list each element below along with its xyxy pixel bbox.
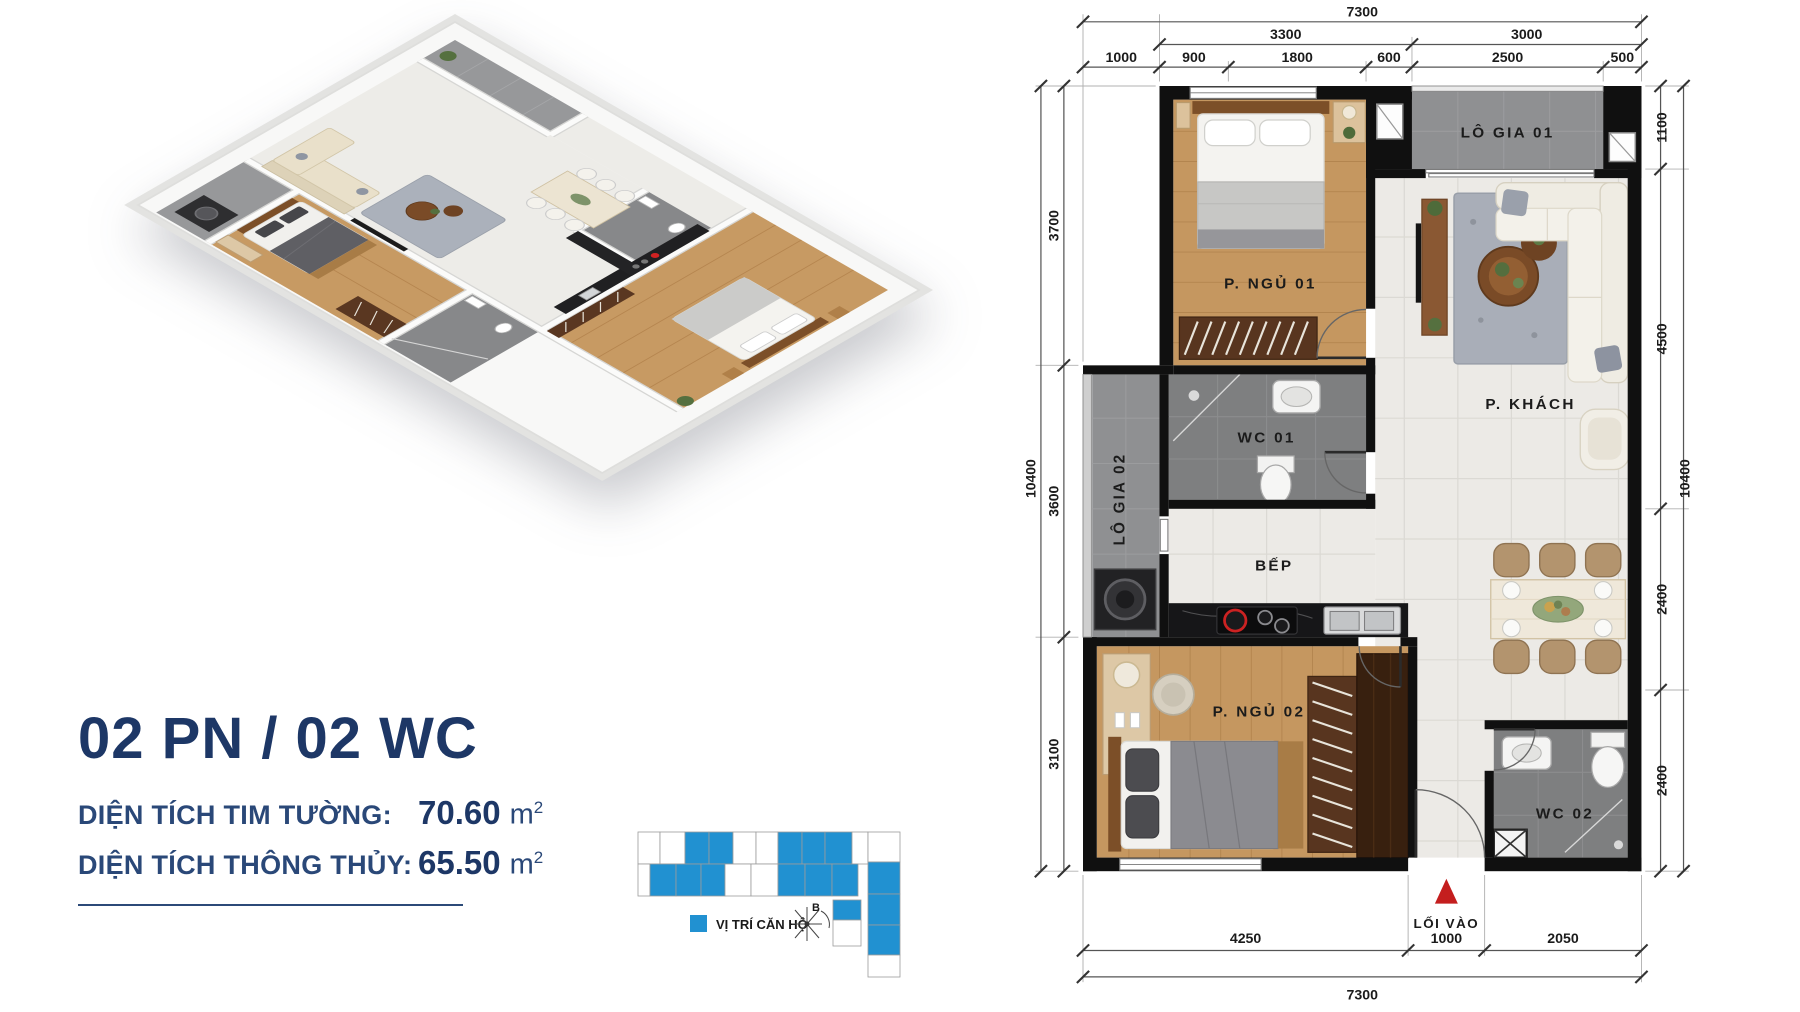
- area-rows: DIỆN TÍCH TIM TƯỜNG: 70.60 m2 DIỆN TÍCH …: [78, 794, 638, 882]
- dim-top-seg-2: 900: [1182, 49, 1206, 65]
- dim-right-seg-4: 2400: [1654, 765, 1670, 796]
- room-label-wc2: WC 02: [1536, 805, 1594, 822]
- dim-top-group-1: 3300: [1270, 26, 1302, 42]
- dim-top-seg-3: 1800: [1281, 49, 1313, 65]
- room-label-living: P. KHÁCH: [1485, 396, 1575, 413]
- unit-summary: 02 PN / 02 WC DIỆN TÍCH TIM TƯỜNG: 70.60…: [78, 710, 638, 906]
- room-label-entrance: LỐI VÀO: [1414, 916, 1480, 931]
- dim-bottom-seg-3: 2050: [1547, 930, 1579, 946]
- dim-left-total: 10400: [1022, 459, 1038, 498]
- area-value-gross: 70.60: [418, 794, 501, 832]
- building-locator: VỊ TRÍ CĂN HỘ B: [590, 812, 940, 1007]
- dim-right-seg-2: 4500: [1654, 323, 1670, 354]
- dim-top-seg-6: 500: [1611, 49, 1635, 65]
- dim-right-seg-1: 1100: [1654, 112, 1670, 142]
- kitchen-fixtures: [1169, 603, 1408, 637]
- compass-label: B: [812, 902, 820, 914]
- iso-apartment: [124, 14, 933, 481]
- area-label-gross: DIỆN TÍCH TIM TƯỜNG:: [78, 800, 418, 831]
- area-row-gross: DIỆN TÍCH TIM TƯỜNG: 70.60 m2: [78, 794, 638, 832]
- dining-set: [1491, 544, 1626, 674]
- legend-swatch: [690, 915, 707, 932]
- dim-top-group-2: 3000: [1511, 26, 1543, 42]
- dim-left-seg-3: 3100: [1045, 738, 1061, 769]
- divider-line: [78, 904, 463, 906]
- dim-bottom-seg-1: 4250: [1230, 930, 1262, 946]
- room-label-bedroom2: P. NGỦ 02: [1213, 703, 1306, 721]
- dim-top-seg-4: 600: [1377, 49, 1401, 65]
- building-footprint: [638, 832, 900, 977]
- area-value-net: 65.50: [418, 844, 501, 882]
- entrance-marker: LỐI VÀO: [1414, 879, 1480, 931]
- dim-bottom-total: 7300: [1346, 987, 1378, 1003]
- area-label-net: DIỆN TÍCH THÔNG THỦY:: [78, 850, 418, 881]
- dim-bottom-seg-2: 1000: [1431, 930, 1463, 946]
- room-label-bedroom1: P. NGỦ 01: [1224, 274, 1317, 292]
- dim-top-seg-1: 1000: [1106, 49, 1138, 65]
- apartment-3d-render: [25, 0, 945, 700]
- room-label-wc1: WC 01: [1237, 429, 1295, 446]
- dim-right-seg-3: 2400: [1654, 584, 1670, 615]
- area-unit-net: m2: [510, 848, 544, 882]
- dim-left-seg-1: 3700: [1045, 210, 1061, 241]
- area-unit-gross: m2: [510, 798, 544, 832]
- dim-left-seg-2: 3600: [1045, 486, 1061, 517]
- loggia2-fixtures: [1094, 569, 1155, 629]
- locator-legend: VỊ TRÍ CĂN HỘ: [690, 915, 808, 932]
- dim-top-total: 7300: [1346, 4, 1378, 20]
- page: 02 PN / 02 WC DIỆN TÍCH TIM TƯỜNG: 70.60…: [0, 0, 1800, 1012]
- room-label-loggia2: LÔ GIA 02: [1111, 453, 1129, 546]
- floor-plan: LỐI VÀO P. NGỦ 01 WC 01 LÔ GIA 01 LÔ GIA…: [905, 0, 1800, 1012]
- entrance-arrow-icon: [1435, 879, 1458, 904]
- room-label-loggia1: LÔ GIA 01: [1461, 123, 1555, 141]
- area-row-net: DIỆN TÍCH THÔNG THỦY: 65.50 m2: [78, 844, 638, 882]
- room-label-kitchen: BẾP: [1255, 558, 1293, 575]
- dim-top-seg-5: 2500: [1492, 49, 1524, 65]
- unit-title: 02 PN / 02 WC: [78, 710, 638, 768]
- dim-right-total: 10400: [1677, 459, 1693, 498]
